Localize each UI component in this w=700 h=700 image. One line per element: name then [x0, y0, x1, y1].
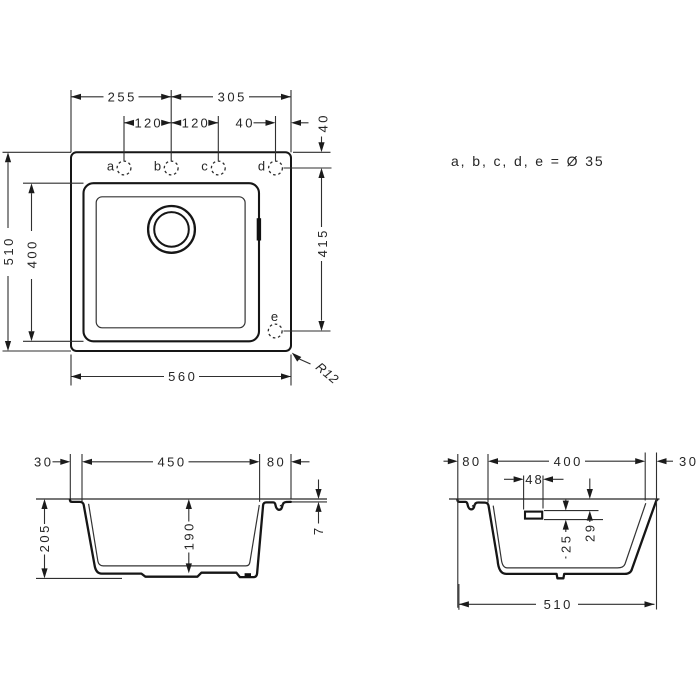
- svg-text:80: 80: [267, 454, 286, 469]
- svg-text:a, b, c, d, e = Ø 35: a, b, c, d, e = Ø 35: [451, 153, 605, 169]
- svg-text:190: 190: [182, 521, 197, 550]
- svg-text:b: b: [154, 159, 161, 174]
- svg-text:25: 25: [558, 534, 573, 553]
- svg-text:400: 400: [554, 454, 583, 469]
- svg-text:d: d: [258, 159, 265, 174]
- svg-text:120: 120: [135, 115, 163, 130]
- svg-text:450: 450: [157, 454, 186, 469]
- svg-text:415: 415: [315, 228, 330, 257]
- svg-text:510: 510: [544, 597, 573, 612]
- svg-text:30: 30: [34, 454, 53, 469]
- svg-text:400: 400: [25, 239, 40, 268]
- svg-text:c: c: [201, 159, 208, 174]
- svg-text:305: 305: [218, 89, 247, 104]
- svg-text:40: 40: [236, 115, 255, 130]
- svg-text:7: 7: [311, 525, 326, 535]
- svg-text:30: 30: [679, 454, 698, 469]
- svg-text:205: 205: [37, 523, 52, 552]
- svg-text:e: e: [271, 309, 278, 324]
- svg-text:80: 80: [462, 454, 481, 469]
- svg-text:29: 29: [582, 523, 597, 542]
- svg-text:120: 120: [182, 115, 210, 130]
- svg-text:510: 510: [1, 236, 16, 265]
- svg-text:255: 255: [108, 89, 137, 104]
- svg-text:a: a: [107, 159, 115, 174]
- svg-text:48: 48: [525, 472, 543, 487]
- svg-text:40: 40: [316, 113, 331, 132]
- svg-text:560: 560: [168, 369, 197, 384]
